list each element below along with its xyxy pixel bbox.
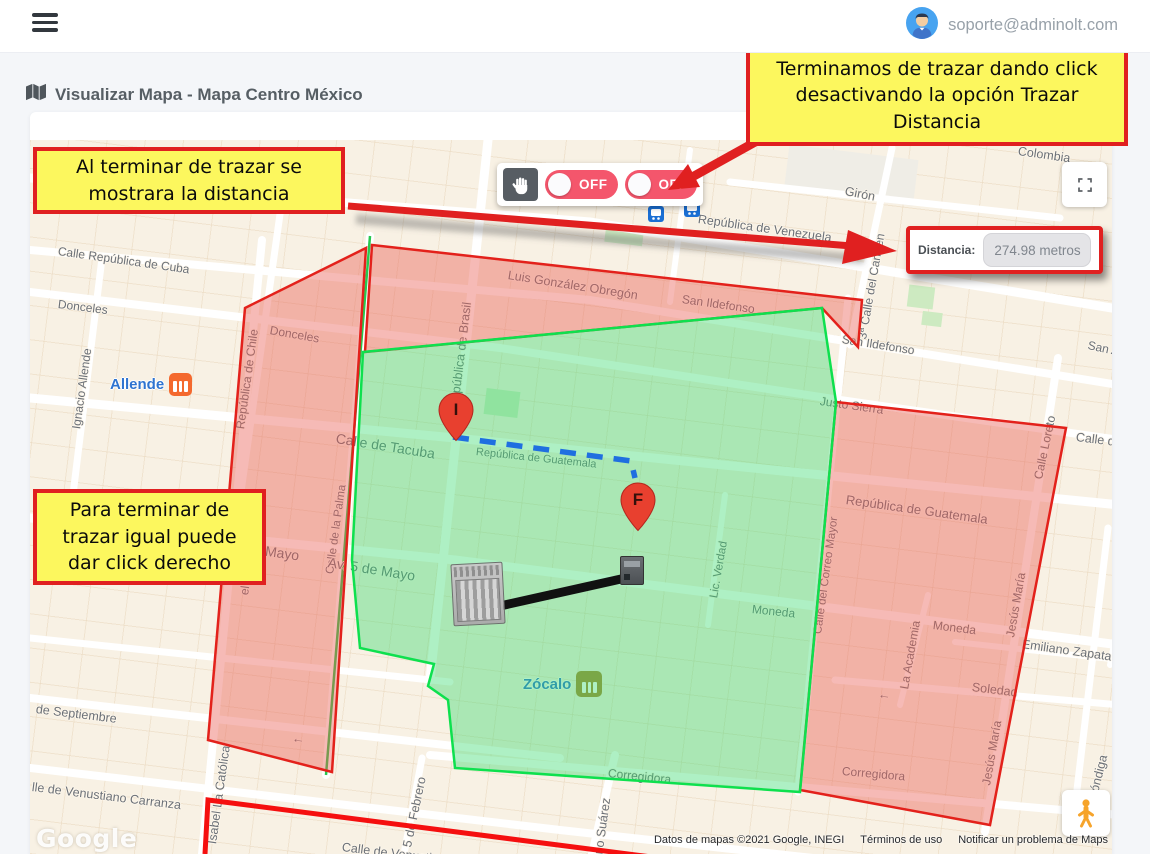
report-problem-link[interactable]: Notificar un problema de Maps [958,834,1108,846]
terms-link[interactable]: Términos de uso [860,834,942,846]
marker-start-letter: I [437,400,475,420]
distance-value-field[interactable]: 274.98 metros [983,233,1091,267]
zone-red-left [208,248,366,772]
google-watermark[interactable]: Google [36,824,137,853]
zone-red-bottom-outline [205,800,675,854]
attribution-copyright: Datos de mapas ©2021 Google, INEGI [654,834,844,846]
map-card: Belisario DomínguezRepública de BrasilRe… [30,112,1112,854]
toggle-knob [548,173,571,196]
pegman-control[interactable] [1062,790,1110,836]
hamburger-menu-button[interactable] [32,13,58,35]
zone-green [352,308,836,792]
topbar: soporte@adminolt.com [0,0,1150,53]
distance-label: Distancia: [918,243,975,257]
user-menu[interactable]: soporte@adminolt.com [906,7,1118,43]
user-avatar [906,7,938,44]
toggle-switch-1[interactable]: OFF [545,170,618,199]
hand-tool-button[interactable] [503,168,538,201]
page-title: Visualizar Mapa - Mapa Centro México [55,85,363,105]
user-email: soporte@adminolt.com [948,16,1118,35]
toggle-label: OFF [579,177,608,192]
zone-red-right [800,402,1066,825]
olt-device-icon[interactable] [450,562,505,627]
toggle-label: OFF [659,177,688,192]
nap-device-icon[interactable] [620,556,644,585]
fullscreen-button[interactable] [1062,162,1107,207]
map-icon [25,82,47,107]
toggle-switch-2[interactable]: OFF [625,170,698,199]
marker-start[interactable]: I [437,392,475,442]
distance-value: 274.98 metros [994,243,1080,258]
distance-panel: Distancia: 274.98 metros [906,226,1103,274]
marker-end[interactable]: F [619,482,657,532]
map-canvas[interactable]: Belisario DomínguezRepública de BrasilRe… [30,140,1112,854]
page-title-row: Visualizar Mapa - Mapa Centro México [25,82,363,107]
map-tools-panel: OFF OFF [497,163,703,206]
map-attribution: Datos de mapas ©2021 Google, INEGI Térmi… [654,834,1108,846]
toggle-knob [628,173,651,196]
marker-end-letter: F [619,490,657,510]
